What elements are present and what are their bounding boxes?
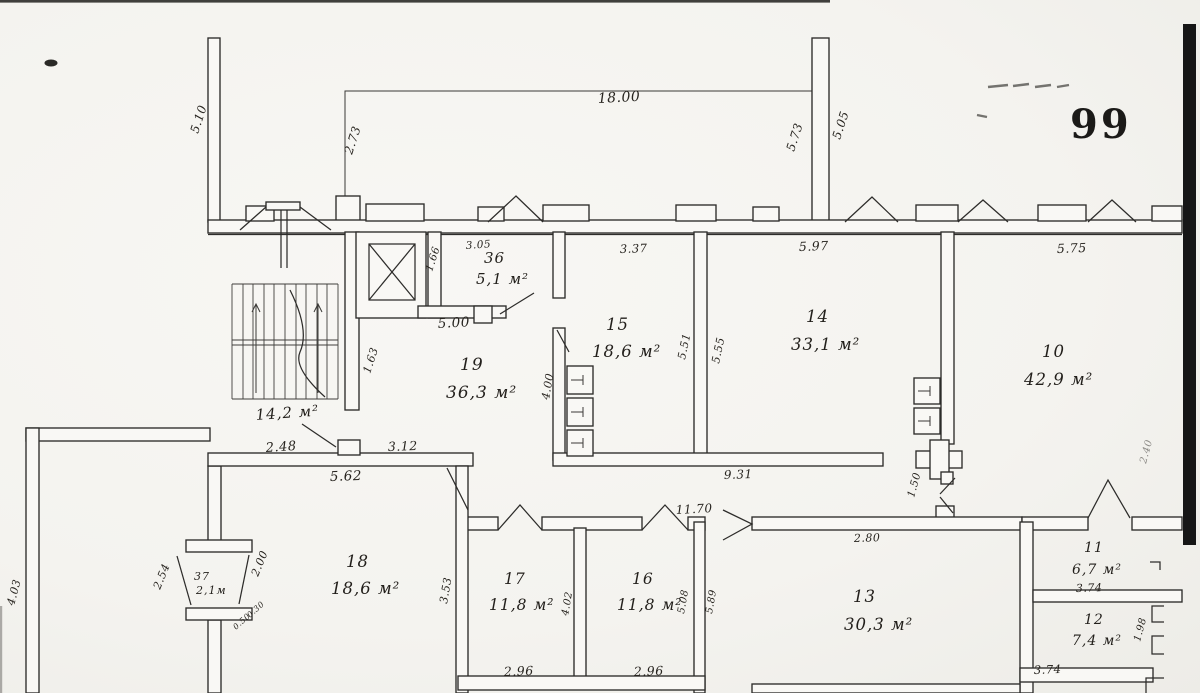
door-swing-13 xyxy=(723,510,752,540)
wall-corridor-lower-b xyxy=(542,517,642,530)
wall-15-14 xyxy=(694,232,707,460)
stairwell xyxy=(232,232,359,410)
terrace-right-wall xyxy=(812,38,829,222)
dim-left-edge: 4.03 xyxy=(4,578,24,608)
scan-left-edge xyxy=(0,606,2,693)
stairwell-area-label: 14,2 м² xyxy=(255,402,320,424)
leader-line-stair-area xyxy=(302,424,336,447)
wall-corridor-lower-e xyxy=(1132,517,1182,530)
dim-room18-right: 3.53 xyxy=(437,576,454,604)
room-12-number: 12 xyxy=(1084,612,1104,628)
vestibule-37 xyxy=(177,540,252,620)
room-19-area: 36,3 м² xyxy=(446,383,517,403)
dim-room17-bottom: 2.96 xyxy=(503,663,534,679)
door-swing-11 xyxy=(1088,480,1130,518)
dim-room14-top: 5.97 xyxy=(799,238,829,254)
fixtures-room-15 xyxy=(567,366,593,456)
dim-room36-top: 3.05 xyxy=(465,238,491,252)
stair-treads xyxy=(232,284,338,399)
wall-11-12 xyxy=(1033,590,1182,602)
dim-room16-bottom: 2.96 xyxy=(633,663,664,679)
room-13-area: 30,3 м² xyxy=(844,615,913,634)
room-12-area: 7,4 м² xyxy=(1072,633,1122,649)
room-36-area: 5,1 м² xyxy=(476,270,529,288)
dim-room15-right-inner: 5.51 xyxy=(675,332,693,361)
dim-terrace-right-outer: 5.05 xyxy=(830,109,852,141)
dim-room14-left: 5.55 xyxy=(709,336,727,365)
dim-room12-right: 1.98 xyxy=(1132,616,1149,642)
dim-door-14: 1.50 xyxy=(905,471,923,499)
dim-room13-top: 2.80 xyxy=(853,531,881,545)
wall-14-10 xyxy=(941,232,954,444)
wall-corridor-upper-east xyxy=(553,453,883,466)
scan-top-border xyxy=(0,0,830,3)
dim-room16-right-inner: 5.08 xyxy=(676,589,691,615)
door-swing-17 xyxy=(498,505,542,530)
wall-36-step xyxy=(474,306,492,323)
dim-corridor-length: 11.70 xyxy=(675,501,713,517)
ink-smudge xyxy=(45,60,58,67)
wall-left-upper xyxy=(208,38,220,222)
wall-16-13 xyxy=(694,522,705,693)
room-18-number: 18 xyxy=(346,552,369,571)
dim-room15-top: 3.37 xyxy=(620,241,648,256)
dim-stair-hall-right: 3.12 xyxy=(388,438,418,454)
room-14-area: 33,1 м² xyxy=(791,335,860,354)
room-17-area: 11,8 м² xyxy=(489,596,555,614)
room-11-number: 11 xyxy=(1084,540,1104,556)
room-37-number: 37 xyxy=(194,570,210,583)
wall-17-16 xyxy=(574,528,586,685)
room-19-number: 19 xyxy=(460,355,484,375)
dim-vestibule-right: 2.00 xyxy=(248,549,270,579)
terrace-outline xyxy=(345,91,813,198)
wall-13-bottom xyxy=(752,684,1020,693)
room-15-area: 18,6 м² xyxy=(592,342,661,361)
wall-lower-left-vertical xyxy=(26,428,39,693)
dim-room36-bottom: 5.00 xyxy=(437,314,470,332)
room-15-number: 15 xyxy=(606,315,629,334)
dim-vestibule-small-b: 0.30 xyxy=(245,600,266,620)
dim-terrace-right-inner: 5.73 xyxy=(784,121,806,153)
dim-room10-top: 5.75 xyxy=(1057,240,1087,256)
interior-walls xyxy=(177,232,1182,693)
wall-17-16-bottom xyxy=(458,676,705,690)
dim-room11-bottom: 3.74 xyxy=(1076,581,1103,595)
wall-left-mid xyxy=(208,466,221,542)
dim-vestibule-left: 2.54 xyxy=(150,562,172,592)
window-piers xyxy=(246,204,1182,221)
floor-plan-scan: 19 36,3 м² 36 5,1 м² 15 18,6 м² 14 33,1 … xyxy=(0,0,1200,693)
room-36-number: 36 xyxy=(484,249,505,267)
dim-stair-wall: 1.63 xyxy=(360,346,381,375)
dim-room13-left: 5.89 xyxy=(704,589,719,615)
sheet-number: 99 xyxy=(1070,101,1132,148)
room-16-area: 11,8 м² xyxy=(617,596,683,614)
dim-terrace-width: 18.00 xyxy=(597,89,640,107)
room-17-number: 17 xyxy=(504,570,526,588)
room-16-number: 16 xyxy=(632,570,654,588)
dim-left-wall: 5.10 xyxy=(188,103,210,135)
stair-direction-arrows xyxy=(252,304,322,393)
dim-room12-bottom: 3.74 xyxy=(1034,662,1062,677)
wall-19-15-lower xyxy=(553,328,565,460)
room-14-number: 14 xyxy=(806,307,829,326)
wall-19-15-upper xyxy=(553,232,565,298)
room-13-number: 13 xyxy=(853,587,876,606)
plan-svg: 19 36,3 м² 36 5,1 м² 15 18,6 м² 14 33,1 … xyxy=(0,0,1200,693)
wall-13-top xyxy=(752,517,1022,530)
dim-stair-hall-left: 2.48 xyxy=(264,439,297,456)
dim-right-edge: 2.40 xyxy=(1138,438,1155,465)
room-18-area: 18,6 м² xyxy=(331,579,400,598)
dim-room17-depth: 4.02 xyxy=(560,591,575,618)
door-swings xyxy=(302,293,1130,540)
elevator-shaft xyxy=(356,232,426,318)
wall-lower-left-horizontal xyxy=(26,428,210,441)
wall-18-17 xyxy=(456,466,468,693)
wall-36-left xyxy=(428,232,441,318)
room-37-area: 2,1м xyxy=(195,584,227,597)
faded-stamp-dashes xyxy=(977,84,1069,117)
room-labels: 19 36,3 м² 36 5,1 м² 15 18,6 м² 14 33,1 … xyxy=(194,249,1122,649)
fixtures-room-14 xyxy=(914,378,940,434)
room-10-area: 42,9 м² xyxy=(1023,370,1093,389)
scan-right-border xyxy=(1183,24,1196,545)
stair-break-line xyxy=(290,290,325,397)
room-10-number: 10 xyxy=(1042,342,1065,361)
wall-pier-stair-hall xyxy=(338,440,360,455)
wall-left-lower xyxy=(208,620,221,693)
dim-room18-top: 5.62 xyxy=(330,468,363,485)
wall-top-main xyxy=(208,220,1182,233)
door-stub-lower xyxy=(936,506,954,518)
door-swing-36 xyxy=(500,293,534,314)
room-11-area: 6,7 м² xyxy=(1072,562,1122,578)
dim-corridor-upper: 9.31 xyxy=(724,467,753,482)
